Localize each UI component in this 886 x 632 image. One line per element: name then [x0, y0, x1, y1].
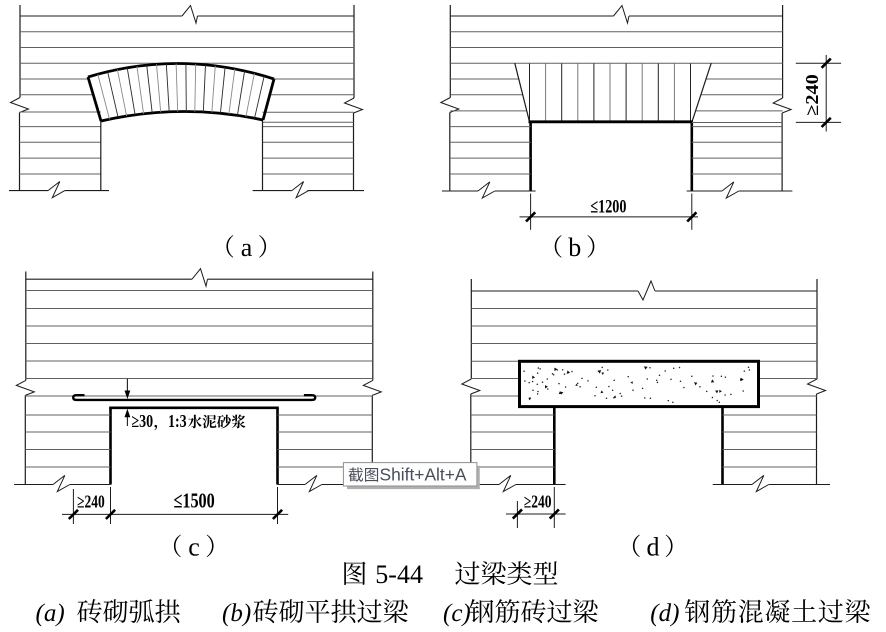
svg-text:(b): (b): [222, 600, 251, 627]
svg-text:≥30: ≥30: [132, 411, 154, 431]
svg-text:≥240: ≥240: [803, 74, 823, 115]
svg-text:b: b: [568, 233, 581, 262]
svg-text:a: a: [241, 233, 253, 262]
svg-text:≥240: ≥240: [77, 493, 105, 512]
svg-text:≤1200: ≤1200: [590, 195, 626, 216]
svg-text:(d): (d): [650, 600, 679, 627]
svg-text:5-44: 5-44: [375, 560, 423, 589]
svg-text:c: c: [188, 533, 200, 562]
svg-text:(c): (c): [443, 600, 471, 627]
svg-text:≥240: ≥240: [524, 493, 552, 512]
svg-text:Shift+Alt+A: Shift+Alt+A: [380, 465, 467, 485]
svg-text:(a): (a): [36, 600, 65, 627]
svg-text:d: d: [647, 533, 660, 562]
svg-text:1:3: 1:3: [168, 411, 187, 431]
svg-text:≤1500: ≤1500: [173, 489, 214, 513]
